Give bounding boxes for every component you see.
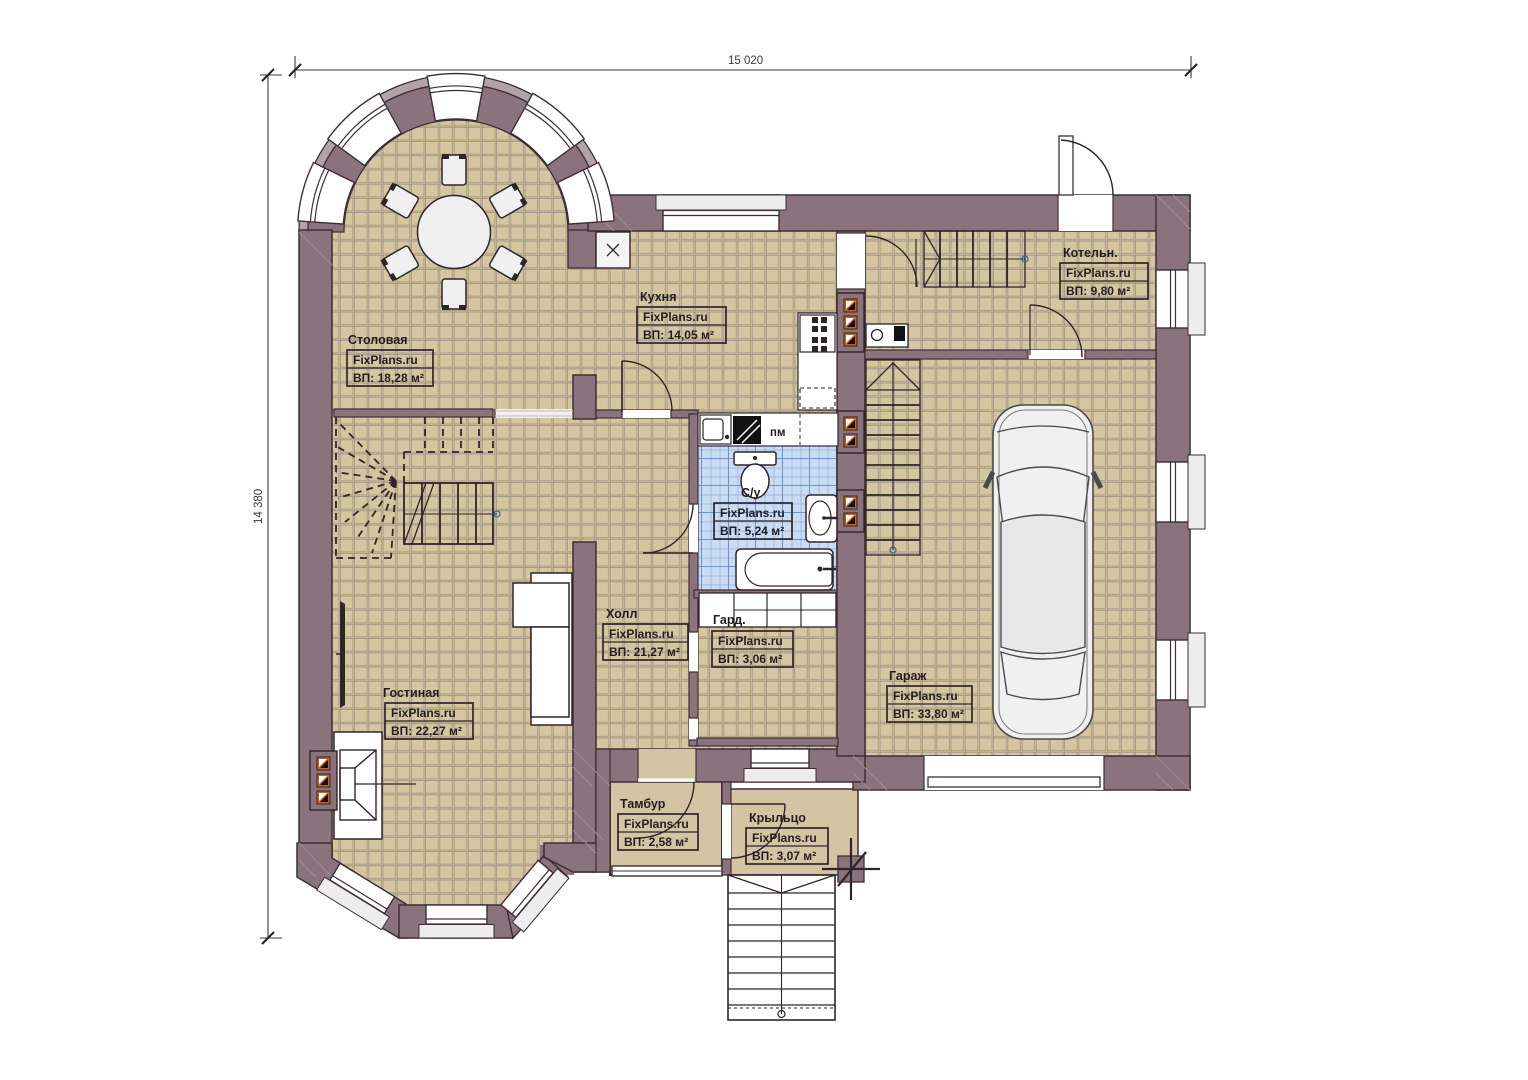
- svg-text:ВП: 9,80 м²: ВП: 9,80 м²: [1066, 284, 1130, 298]
- svg-text:14 380: 14 380: [253, 489, 265, 524]
- svg-text:ВП: 22,27 м²: ВП: 22,27 м²: [391, 724, 462, 738]
- svg-text:Кухня: Кухня: [640, 290, 677, 304]
- svg-text:Котельн.: Котельн.: [1063, 246, 1118, 260]
- svg-text:FixPlans.ru: FixPlans.ru: [643, 310, 708, 324]
- svg-text:FixPlans.ru: FixPlans.ru: [353, 353, 418, 367]
- svg-text:ВП: 2,58 м²: ВП: 2,58 м²: [624, 835, 688, 849]
- svg-text:ВП: 21,27 м²: ВП: 21,27 м²: [609, 645, 680, 659]
- svg-text:FixPlans.ru: FixPlans.ru: [720, 506, 785, 520]
- svg-text:С/у: С/у: [741, 486, 761, 500]
- svg-text:FixPlans.ru: FixPlans.ru: [391, 706, 456, 720]
- svg-text:Тамбур: Тамбур: [620, 797, 666, 811]
- svg-text:ВП: 33,80 м²: ВП: 33,80 м²: [893, 707, 964, 721]
- svg-text:FixPlans.ru: FixPlans.ru: [1066, 266, 1131, 280]
- svg-text:FixPlans.ru: FixPlans.ru: [609, 627, 674, 641]
- svg-text:Гард.: Гард.: [713, 613, 746, 627]
- svg-text:ВП: 14,05 м²: ВП: 14,05 м²: [643, 328, 714, 342]
- svg-text:Холл: Холл: [606, 607, 637, 621]
- svg-text:ВП: 3,07 м²: ВП: 3,07 м²: [752, 849, 816, 863]
- svg-text:FixPlans.ru: FixPlans.ru: [893, 689, 958, 703]
- svg-text:ВП: 3,06 м²: ВП: 3,06 м²: [718, 652, 782, 666]
- svg-text:ВП: 18,28 м²: ВП: 18,28 м²: [353, 371, 424, 385]
- svg-text:Столовая: Столовая: [348, 333, 408, 347]
- svg-text:15 020: 15 020: [728, 55, 763, 67]
- svg-text:Крыльцо: Крыльцо: [749, 811, 806, 825]
- svg-text:пм: пм: [770, 427, 785, 439]
- svg-text:FixPlans.ru: FixPlans.ru: [752, 831, 817, 845]
- svg-text:Гостиная: Гостиная: [383, 686, 440, 700]
- svg-text:FixPlans.ru: FixPlans.ru: [718, 634, 783, 648]
- svg-text:FixPlans.ru: FixPlans.ru: [624, 817, 689, 831]
- svg-text:ВП: 5,24 м²: ВП: 5,24 м²: [720, 524, 784, 538]
- svg-text:Гараж: Гараж: [889, 669, 926, 683]
